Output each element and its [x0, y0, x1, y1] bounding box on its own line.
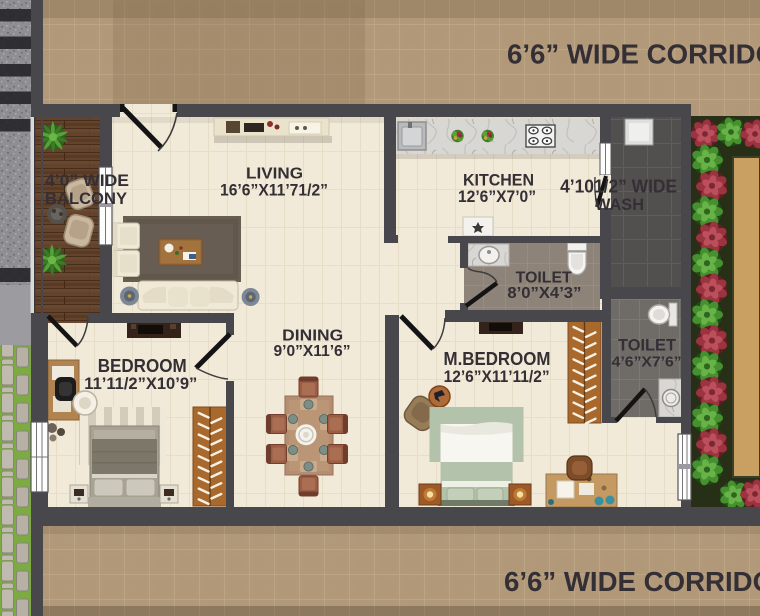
svg-text:6’6” WIDE CORRIDOR: 6’6” WIDE CORRIDOR: [507, 39, 760, 70]
svg-text:M.BEDROOM: M.BEDROOM: [444, 348, 551, 369]
svg-text:TOILET: TOILET: [516, 270, 573, 287]
svg-text:6’6” WIDE CORRIDOR: 6’6” WIDE CORRIDOR: [504, 566, 760, 597]
svg-text:4’101/2” WIDE: 4’101/2” WIDE: [560, 177, 677, 197]
svg-text:12’6”X7’0”: 12’6”X7’0”: [458, 188, 536, 206]
svg-text:16’6”X11’71/2”: 16’6”X11’71/2”: [220, 181, 328, 200]
svg-text:DINING: DINING: [282, 328, 343, 345]
svg-text:9’0”X11’6”: 9’0”X11’6”: [274, 343, 351, 360]
svg-text:11’11/2”X10’9”: 11’11/2”X10’9”: [84, 374, 197, 393]
svg-text:TOILET: TOILET: [618, 337, 676, 355]
svg-text:BALCONY: BALCONY: [45, 190, 127, 208]
svg-text:4’0” WIDE: 4’0” WIDE: [45, 172, 129, 190]
svg-text:4’6”X7’6”: 4’6”X7’6”: [612, 354, 682, 371]
svg-text:8’0”X4’3”: 8’0”X4’3”: [507, 285, 581, 302]
svg-text:WASH: WASH: [595, 195, 644, 214]
svg-text:KITCHEN: KITCHEN: [463, 172, 534, 190]
svg-text:BEDROOM: BEDROOM: [98, 356, 187, 376]
svg-text:12’6”X11’11/2”: 12’6”X11’11/2”: [444, 367, 550, 386]
